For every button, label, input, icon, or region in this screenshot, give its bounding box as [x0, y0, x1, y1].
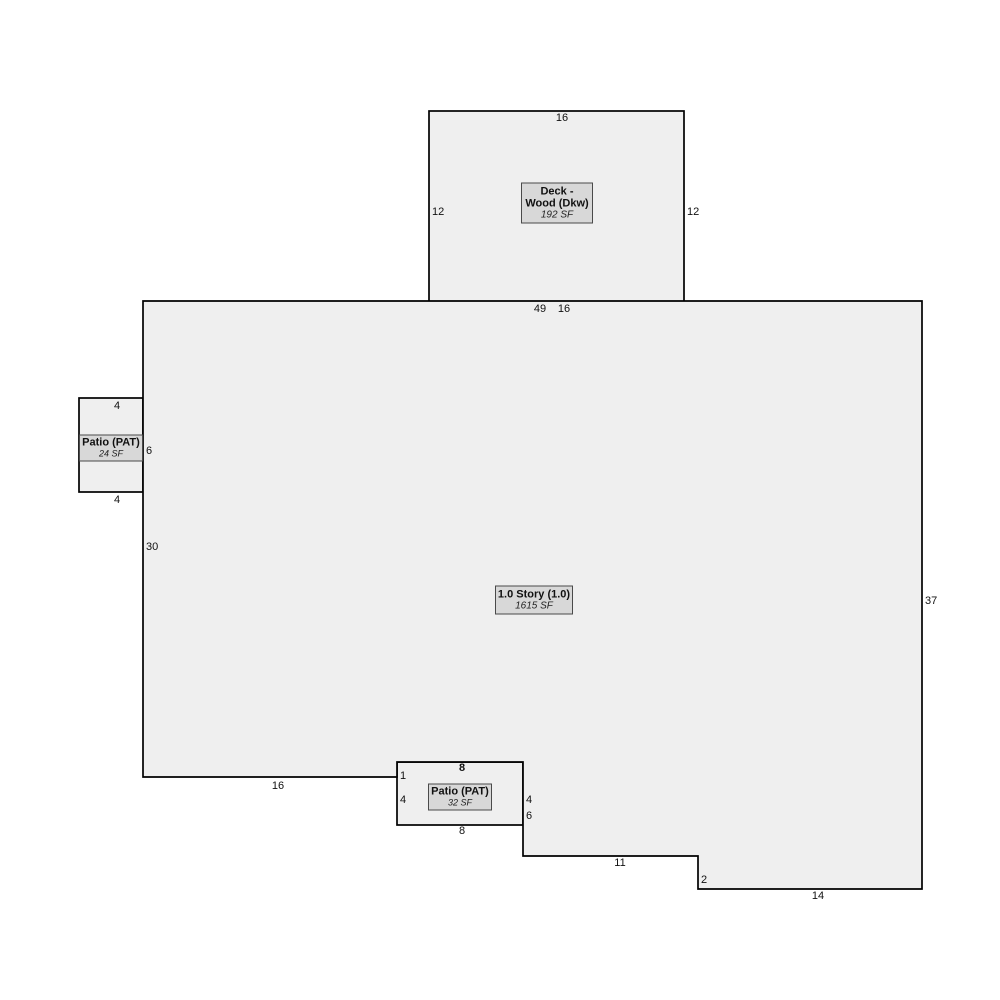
story-title: 1.0 Story (1.0)	[497, 589, 571, 601]
dim-main-right: 37	[925, 595, 937, 607]
dim-deck-top: 16	[556, 112, 568, 124]
deck-title-line1: Deck -	[523, 186, 591, 198]
dim-deck-left: 12	[432, 206, 444, 218]
deck-area-label: Deck - Wood (Dkw) 192 SF	[521, 183, 593, 224]
dim-main-bottom-left: 16	[272, 780, 284, 792]
dim-deck-right: 12	[687, 206, 699, 218]
dim-patio-bottom-right: 4	[526, 794, 532, 806]
dim-patio-bottom-left: 4	[400, 794, 406, 806]
patio-left-area-sf: 24 SF	[81, 449, 141, 459]
dim-patio-bottom-top: 8	[459, 762, 465, 774]
dim-main-bottom-mid: 11	[614, 857, 625, 869]
story-area-label: 1.0 Story (1.0) 1615 SF	[495, 586, 573, 615]
floorplan-sketch: 16 12 12 49 16 4 6 4 30 37 16 8 1 4 4 6 …	[0, 0, 1000, 1000]
patio-bottom-area-label: Patio (PAT) 32 SF	[428, 784, 492, 811]
dim-patio-bottom-step: 1	[400, 770, 406, 782]
dim-main-step: 2	[701, 874, 707, 886]
dim-patio-bottom-bottom: 8	[459, 825, 465, 837]
dim-main-left: 30	[146, 541, 158, 553]
deck-title-line2: Wood (Dkw)	[523, 198, 591, 210]
story-area-sf: 1615 SF	[497, 601, 571, 612]
dim-patio-left-right: 6	[146, 445, 152, 457]
dim-patio-left-bottom: 4	[114, 494, 120, 506]
dim-main-top: 49	[534, 303, 546, 315]
deck-area-sf: 192 SF	[523, 210, 591, 221]
dim-main-bottom-right: 14	[812, 890, 824, 902]
patio-left-title: Patio (PAT)	[81, 438, 141, 449]
dim-deck-bottom: 16	[558, 303, 570, 315]
patio-bottom-area-sf: 32 SF	[430, 798, 490, 808]
dim-notch-right: 6	[526, 810, 532, 822]
patio-bottom-title: Patio (PAT)	[430, 787, 490, 798]
patio-left-area-label: Patio (PAT) 24 SF	[79, 435, 143, 462]
floorplan-drawing	[0, 0, 1000, 1000]
dim-patio-left-top: 4	[114, 400, 120, 412]
